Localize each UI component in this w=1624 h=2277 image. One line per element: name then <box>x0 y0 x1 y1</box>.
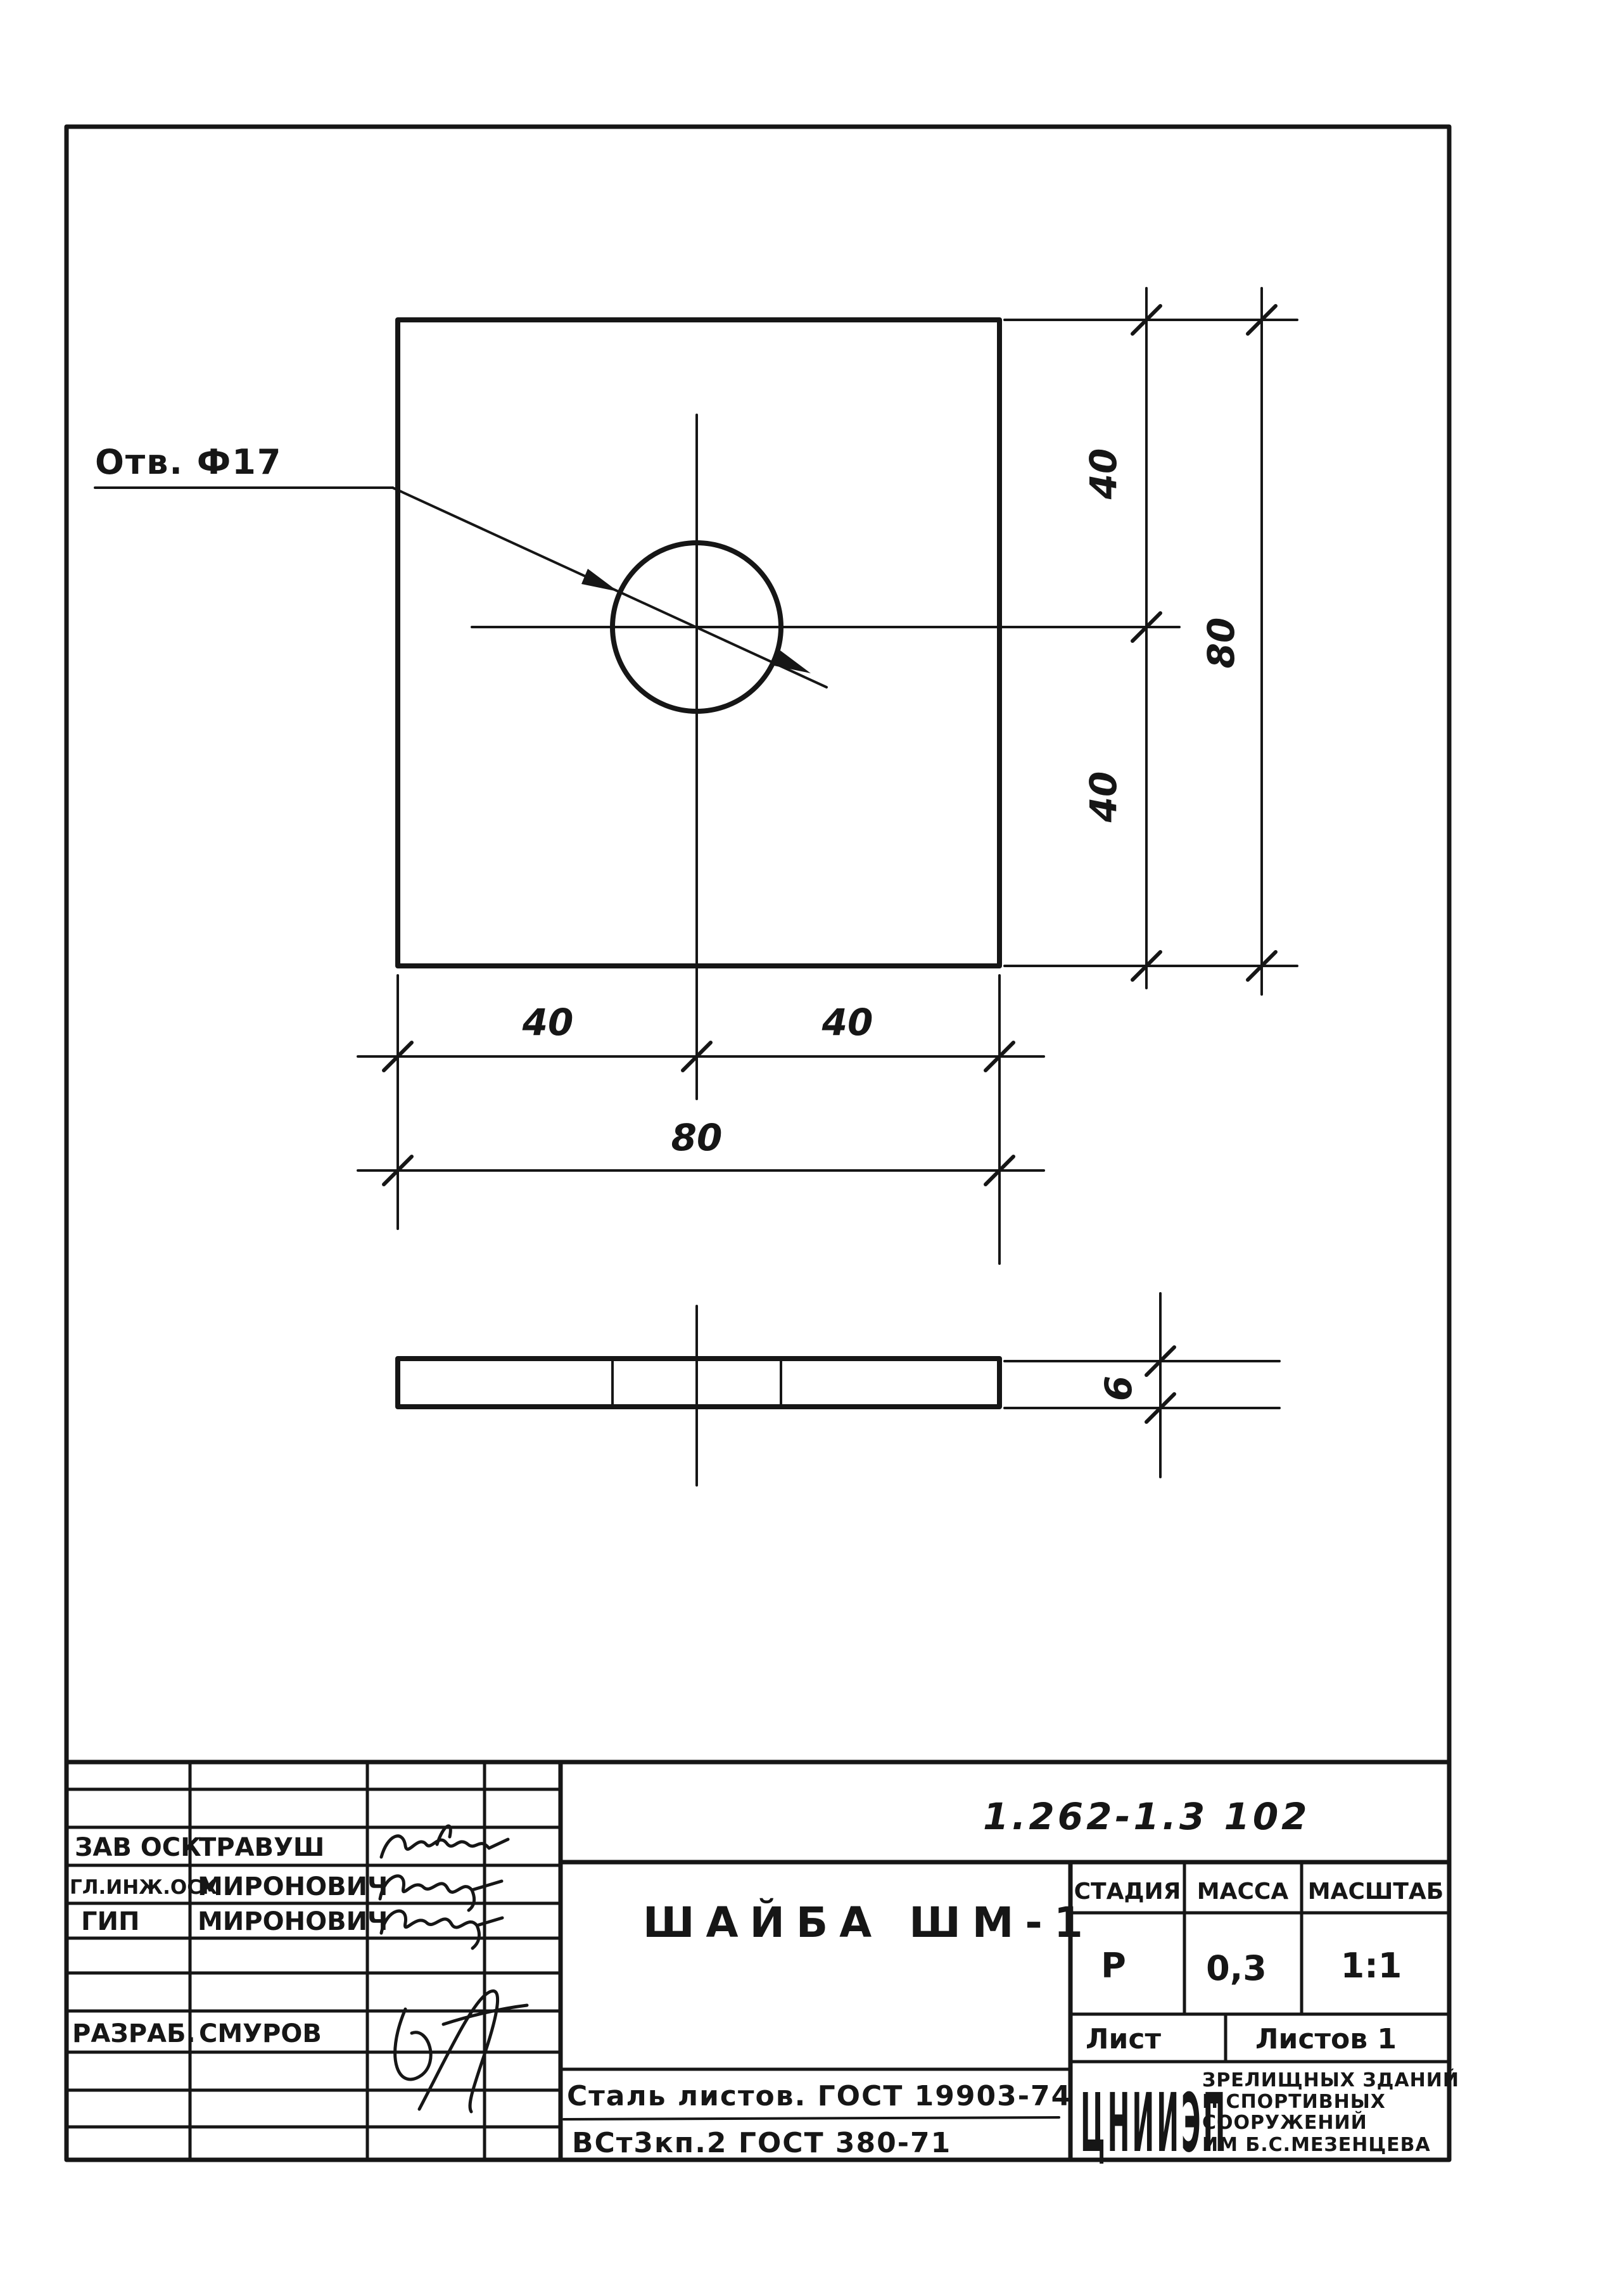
sheet-label: Лист <box>1086 2023 1161 2055</box>
dim-value-bottom-overall: 80 <box>671 1116 723 1159</box>
signature-table: ЗАВ ОСК ТРАВУШ ГЛ.ИНЖ.ОСК МИРОНОВИЧ ГИП … <box>67 1762 561 2160</box>
side-view: 6 <box>398 1293 1279 1485</box>
right-dimensions: 40 40 80 <box>1005 288 1297 994</box>
material-divider-line <box>564 2117 1059 2119</box>
role-name: МИРОНОВИЧ <box>198 1872 388 1901</box>
plate-section-outline <box>398 1359 999 1407</box>
hole-callout-label: Отв. Ф17 <box>95 442 282 482</box>
scale-header: МАСШТАБ <box>1308 1879 1443 1905</box>
dim-value-right-overall: 80 <box>1200 618 1243 669</box>
signature <box>381 1826 508 1857</box>
leader-arrowhead <box>774 650 811 673</box>
dim-value-right-lower: 40 <box>1082 771 1125 823</box>
org-name-line: СООРУЖЕНИЙ <box>1202 2111 1367 2134</box>
org-name-line: ЗРЕЛИЩНЫХ ЗДАНИЙ <box>1202 2069 1459 2091</box>
material-spec-line1: Сталь листов. ГОСТ 19903-74 <box>567 2080 1072 2112</box>
material-spec-line2: ВСт3кп.2 ГОСТ 380-71 <box>572 2127 951 2159</box>
plan-view: Отв. Ф17 40 40 80 <box>95 288 1297 1264</box>
org-name-line: И СПОРТИВНЫХ <box>1202 2091 1386 2113</box>
organization-stamp: ЦНИИЭП ЗРЕЛИЩНЫХ ЗДАНИЙ И СПОРТИВНЫХ СОО… <box>1081 2069 1459 2171</box>
drawing-sheet: Отв. Ф17 40 40 80 <box>0 0 1624 2277</box>
leader-arrowhead <box>581 569 618 592</box>
material-cell: Сталь листов. ГОСТ 19903-74 ВСт3кп.2 ГОС… <box>564 2080 1072 2159</box>
org-name-line: ИМ Б.С.МЕЗЕНЦЕВА <box>1202 2134 1431 2156</box>
dim-value-bottom-right: 40 <box>822 1001 873 1044</box>
mass-value: 0,3 <box>1206 1948 1267 1988</box>
dim-value-thickness: 6 <box>1097 1376 1140 1401</box>
drawing-canvas: Отв. Ф17 40 40 80 <box>0 0 1624 2277</box>
role-label: ЗАВ ОСК <box>75 1833 201 1862</box>
role-label: ГИП <box>81 1907 139 1936</box>
part-title: ШАЙБА ШМ-1 <box>643 1898 1094 1947</box>
role-label: РАЗРАБ. <box>72 2019 196 2048</box>
dim-value-right-upper: 40 <box>1082 448 1125 500</box>
mass-header: МАССА <box>1197 1879 1289 1905</box>
sheets-label: Листов 1 <box>1255 2023 1397 2055</box>
dim-value-bottom-left: 40 <box>522 1001 574 1044</box>
scale-value: 1:1 <box>1341 1946 1402 1986</box>
plate-outline <box>398 320 999 966</box>
bottom-dimensions: 40 40 80 <box>358 975 1044 1264</box>
role-name: МИРОНОВИЧ <box>198 1907 388 1936</box>
stage-value: Р <box>1101 1946 1126 1986</box>
role-label: ГЛ.ИНЖ.ОСК <box>70 1876 217 1899</box>
stage-header: СТАДИЯ <box>1074 1879 1181 1905</box>
sheet-row: Лист Листов 1 <box>1070 2014 1449 2062</box>
title-block: ЗАВ ОСК ТРАВУШ ГЛ.ИНЖ.ОСК МИРОНОВИЧ ГИП … <box>67 1762 1459 2171</box>
role-name: СМУРОВ <box>199 2019 322 2048</box>
role-name: ТРАВУШ <box>199 1833 324 1862</box>
document-number: 1.262-1.3 102 <box>983 1795 1310 1838</box>
